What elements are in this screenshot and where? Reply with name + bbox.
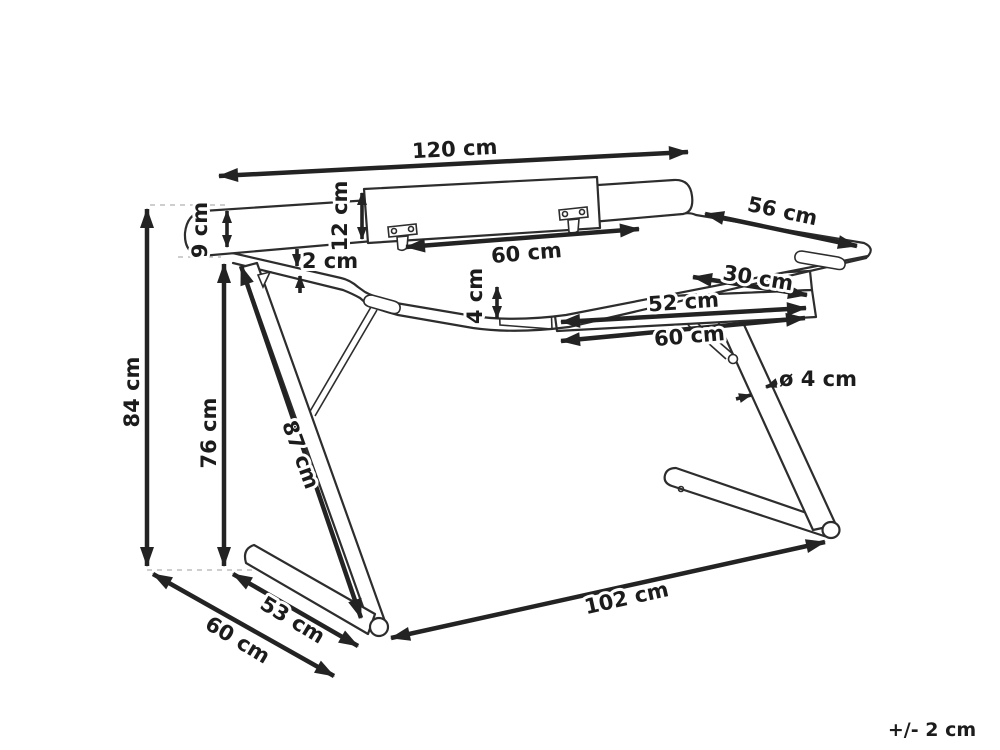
left-strut [315, 310, 377, 416]
right-foot-cap [823, 522, 840, 538]
dim-diameter-pointer-left [736, 395, 751, 399]
dim-label-top-thickness: 2 cm [302, 249, 358, 273]
dim-label-base-span: 102 cm [582, 577, 671, 619]
dim-label-total-height: 84 cm [120, 357, 144, 428]
dim-label-tube-diameter: ø 4 cm [779, 367, 857, 391]
desk-dimension-diagram: 120 cm 9 cm 12 cm 60 cm 56 cm 2 cm 4 cm … [0, 0, 1000, 750]
dim-label-total-width: 120 cm [411, 135, 498, 163]
tolerance-note: +/- 2 cm [888, 719, 976, 741]
dim-label-rail-height: 9 cm [188, 202, 212, 258]
dim-label-riser-height: 12 cm [328, 181, 352, 252]
diagram-canvas: 120 cm 9 cm 12 cm 60 cm 56 cm 2 cm 4 cm … [0, 0, 1000, 750]
left-leg-assembly [242, 263, 400, 636]
dim-label-tray-front-width: 52 cm [647, 288, 719, 317]
strut-pivot [729, 355, 738, 364]
dim-label-tray-width: 60 cm [653, 321, 726, 351]
dim-label-clearance: 76 cm [197, 398, 221, 469]
left-strut [309, 307, 371, 413]
desk-corner-edge [866, 256, 868, 258]
guide-lines [147, 205, 253, 570]
dim-label-tray-height: 4 cm [463, 268, 487, 324]
left-foot-pivot [370, 618, 388, 636]
